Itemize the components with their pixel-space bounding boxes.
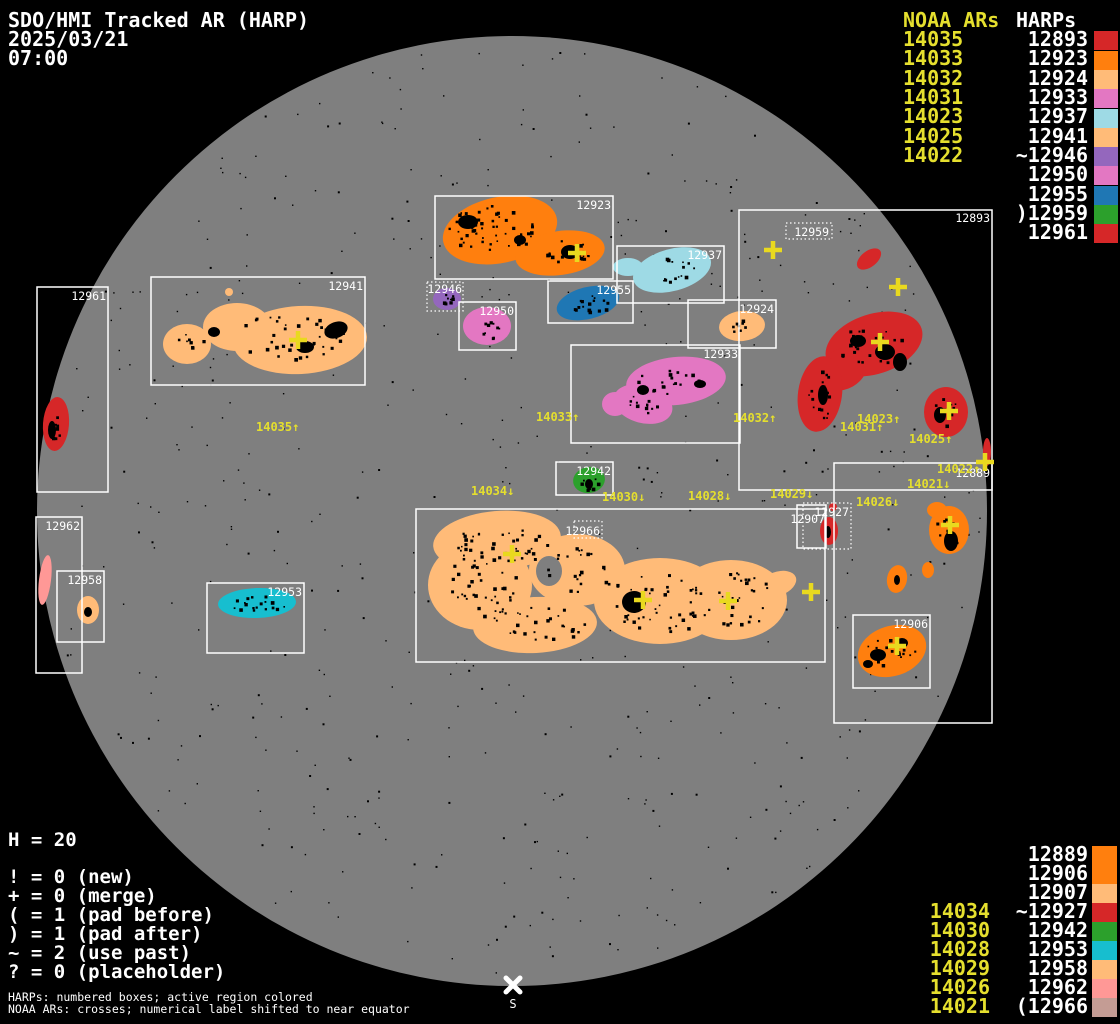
harp-color-swatch bbox=[1092, 998, 1117, 1017]
noaa-ar-label: 14023↑ bbox=[857, 412, 900, 426]
harp-color-swatch bbox=[1092, 941, 1117, 960]
harp-box-label: 12937 bbox=[687, 248, 722, 262]
noaa-ar-label: 14029↓ bbox=[770, 487, 813, 501]
noaa-ar-label: 14022↑ bbox=[937, 462, 980, 476]
harp-box-label: 12962 bbox=[45, 519, 80, 533]
harp-color-swatch bbox=[1094, 224, 1118, 243]
harp-count: H = 20 bbox=[8, 829, 77, 851]
legend-item: ? = 0 (placeholder) bbox=[8, 961, 225, 983]
noaa-ar-label: 14030↓ bbox=[602, 490, 645, 504]
harp-box-label: 12959 bbox=[794, 225, 829, 239]
harp-box-label: 12906 bbox=[893, 617, 928, 631]
harp-color-swatch bbox=[1092, 903, 1117, 922]
harp-box-label: 12955 bbox=[596, 283, 631, 297]
harp-color-swatch bbox=[1094, 186, 1118, 205]
noaa-ar-label: 14026↓ bbox=[856, 495, 899, 509]
harp-box-label: 12907 bbox=[790, 512, 825, 526]
harp-color-swatch bbox=[1094, 51, 1118, 70]
harp-color-swatch bbox=[1092, 846, 1117, 865]
harp-list-item: 12961 bbox=[1028, 220, 1088, 244]
noaa-ar-label: 14025↑ bbox=[909, 432, 952, 446]
harp-box-label: 12923 bbox=[576, 198, 611, 212]
harp-box-label: 12933 bbox=[703, 347, 738, 361]
harp-color-swatch bbox=[1094, 205, 1118, 224]
harp-color-swatch bbox=[1092, 960, 1117, 979]
noaa-list-item: 14021 bbox=[930, 994, 990, 1018]
noaa-ar-label: 14028↓ bbox=[688, 489, 731, 503]
time-text: 07:00 bbox=[8, 46, 68, 70]
harp-color-swatch bbox=[1094, 109, 1118, 128]
harp-box-label: 12953 bbox=[267, 585, 302, 599]
harp-full-disk-plot: 12961 12941 12923 12937 12946 12950 1295… bbox=[0, 0, 1120, 1024]
harp-color-swatch bbox=[1092, 922, 1117, 941]
harp-color-swatch bbox=[1092, 884, 1117, 903]
south-pole-label: S bbox=[509, 997, 516, 1011]
harp-color-swatch bbox=[1092, 865, 1117, 884]
harp-color-swatch bbox=[1094, 89, 1118, 108]
harp-box-label: 12966 bbox=[565, 524, 600, 538]
harp-box-label: 12961 bbox=[71, 289, 106, 303]
harp-color-swatch bbox=[1094, 70, 1118, 89]
harp-box-label: 12941 bbox=[328, 279, 363, 293]
noaa-ar-label: 14034↓ bbox=[471, 484, 514, 498]
noaa-list-item: 14022 bbox=[903, 143, 963, 167]
harp-color-swatch bbox=[1094, 128, 1118, 147]
noaa-ar-label: 14021↓ bbox=[907, 477, 950, 491]
harp-color-swatch bbox=[1094, 166, 1118, 185]
noaa-ar-label: 14032↑ bbox=[733, 411, 776, 425]
noaa-ar-label: 14035↑ bbox=[256, 420, 299, 434]
harp-box-label: 12924 bbox=[739, 302, 774, 316]
harp-box-label: 12946 bbox=[427, 282, 462, 296]
harp-color-swatch bbox=[1092, 979, 1117, 998]
harp-box-label: 12950 bbox=[479, 304, 514, 318]
harp-list-item: (12966 bbox=[1016, 994, 1088, 1018]
harp-box-label: 12893 bbox=[955, 211, 990, 225]
harp-box-label: 12942 bbox=[576, 464, 611, 478]
harp-box-label: 12958 bbox=[67, 573, 102, 587]
harp-color-swatch bbox=[1094, 31, 1118, 50]
noaa-ar-label: 14033↑ bbox=[536, 410, 579, 424]
footer-line-2: NOAA ARs: crosses; numerical label shift… bbox=[8, 1002, 410, 1016]
harp-color-swatch bbox=[1094, 147, 1118, 166]
